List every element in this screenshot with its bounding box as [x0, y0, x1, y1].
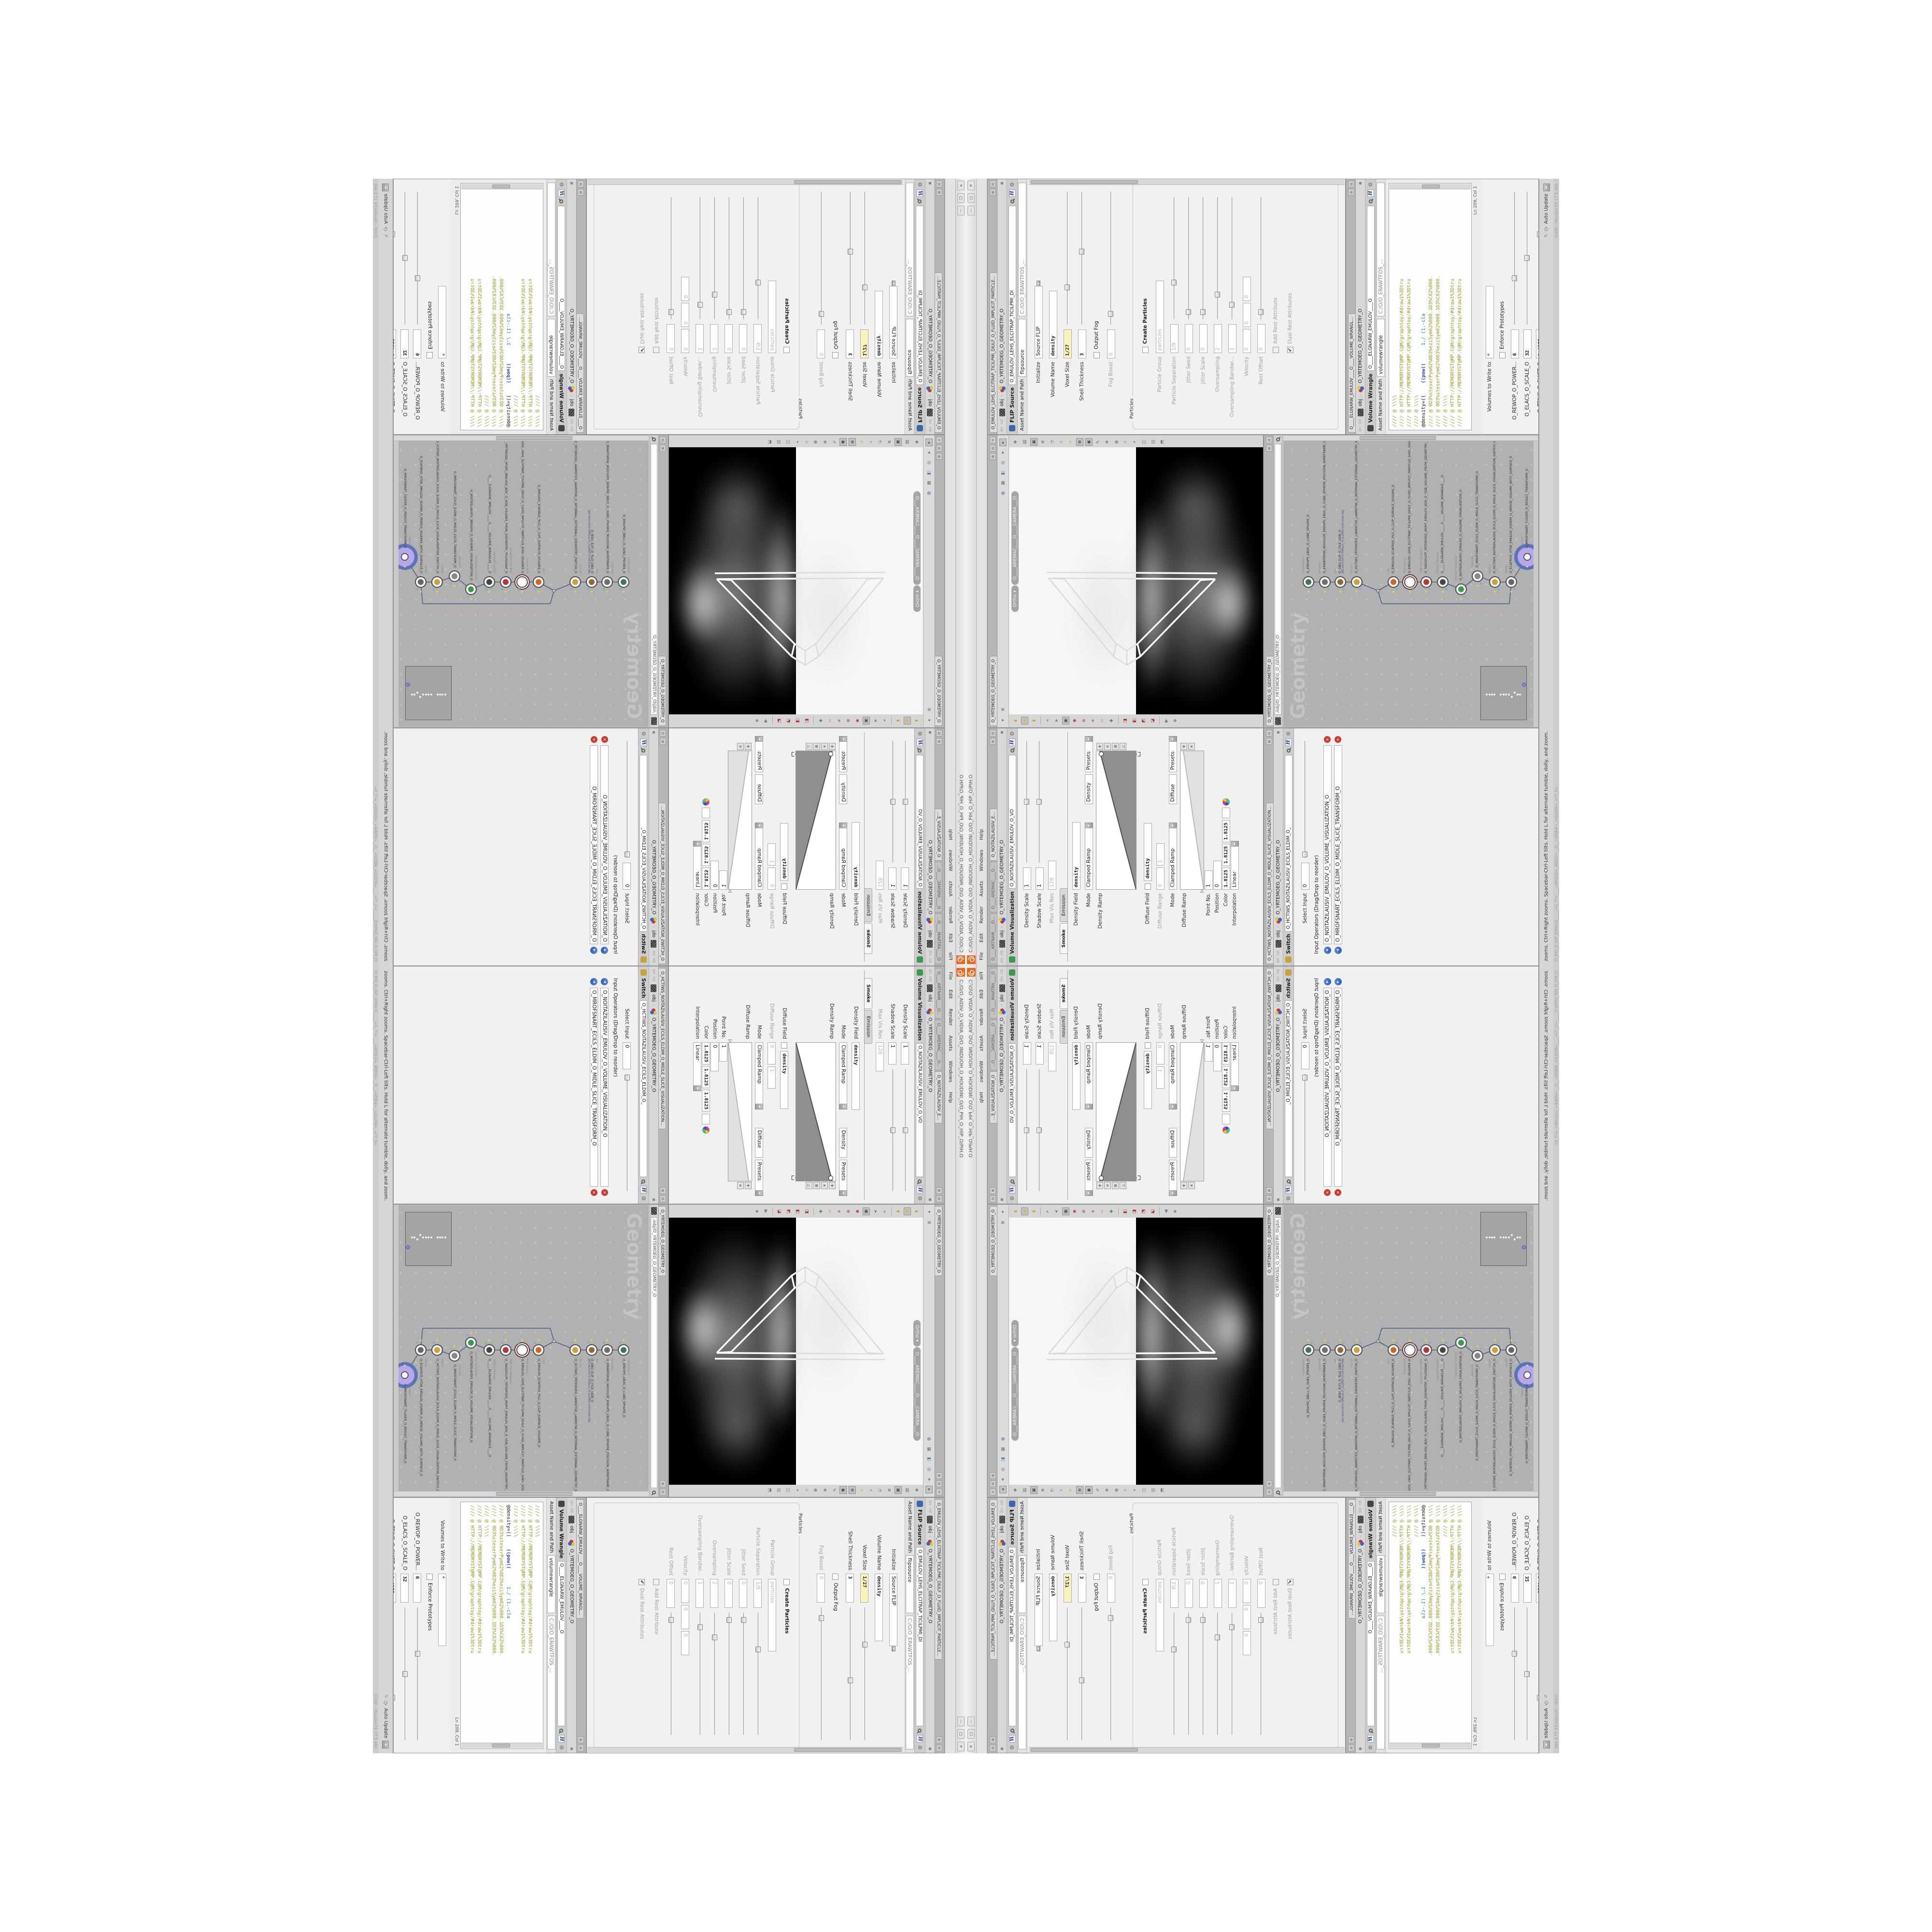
asset-path-field[interactable]: C:/O/O_ERAWTFOS_... — [906, 1616, 914, 1749]
fog-boost-field[interactable]: 0 — [1107, 329, 1115, 358]
node-flag-dot[interactable] — [1343, 1342, 1345, 1344]
pane-split-icon[interactable]: ⊞ — [990, 738, 996, 745]
display-points-icon[interactable]: ● — [1113, 438, 1120, 446]
axis-gizmo-icon[interactable]: ✚ — [1108, 717, 1115, 724]
gear-icon[interactable]: ⚙ — [917, 1745, 923, 1750]
grid-toggle-icon[interactable]: ▧ — [1150, 1486, 1157, 1494]
node-flag-dot[interactable] — [1392, 1339, 1394, 1341]
breadcrumb-node[interactable]: O_YRTEMOEG_O_GEOMETRY_O — [651, 840, 656, 914]
node-flag-dot[interactable] — [1460, 1332, 1462, 1334]
pane-split-icon[interactable]: ⊞ — [936, 453, 942, 460]
breadcrumb-root[interactable]: obj — [927, 1526, 933, 1533]
tab-smoke[interactable]: Smoke — [1060, 978, 1067, 1009]
jitter-scale-field[interactable]: 0 — [725, 324, 733, 353]
param-slider[interactable] — [404, 1607, 405, 1740]
ghost-other-objects-icon[interactable]: ✺ — [821, 1486, 828, 1494]
camera-pill[interactable]: O____AREMAC____O____CAMERA___O — [1011, 1347, 1019, 1441]
node-flag-dot[interactable] — [1425, 591, 1427, 593]
pane-tab-camera[interactable]: O____AREMAC____O... — [990, 1020, 997, 1070]
network-node[interactable] — [618, 576, 629, 588]
node-flag-dot[interactable] — [1339, 591, 1341, 593]
add-rest-attribute-checkbox[interactable] — [653, 347, 660, 353]
color-b-field[interactable]: 1.8125 — [702, 820, 710, 842]
param-slider[interactable] — [1188, 1613, 1189, 1735]
pane-close-icon[interactable]: ✕ — [990, 1489, 996, 1495]
breadcrumb-root[interactable]: obj — [1276, 930, 1281, 938]
delete-input-icon[interactable]: ✕ — [591, 1189, 597, 1196]
input-operator-field[interactable]: O_NOITAZILAUSIV_EMULOV_O_VOLUME_VISUALIZ… — [601, 745, 609, 944]
code-vscrollbar[interactable] — [461, 184, 542, 189]
node-flag-dot[interactable] — [606, 591, 608, 593]
node-flag-dot[interactable] — [587, 588, 589, 590]
search-icon[interactable] — [1010, 1729, 1014, 1733]
menu-arrows-icon[interactable]: ◂▸ — [892, 281, 895, 286]
gyro-dolly-icon[interactable]: ✳ — [1090, 717, 1097, 724]
two-viewports-icon[interactable]: ◫ — [1140, 1486, 1148, 1494]
pane-max-icon[interactable]: ⊟ — [990, 1745, 996, 1751]
rest-offset-field[interactable]: 0 — [1257, 1579, 1265, 1608]
flipbook-icon[interactable]: ▶ — [762, 717, 769, 724]
network-vscrollbar[interactable] — [394, 1491, 649, 1496]
node-flag-dot[interactable] — [1514, 588, 1516, 590]
vector-field[interactable]: 0 — [682, 277, 690, 301]
menu-render[interactable]: Render — [979, 1009, 984, 1026]
target-icon[interactable]: ◎ — [999, 459, 1007, 467]
input-reorder-icon[interactable]: ◂ — [1324, 947, 1331, 954]
pane-max-icon[interactable]: ⊟ — [660, 437, 666, 443]
pin-icon[interactable]: ▪ — [569, 182, 574, 185]
list-icon[interactable]: ≣ — [999, 706, 1007, 713]
target-icon[interactable]: ◎ — [925, 459, 933, 467]
network-node[interactable] — [1351, 576, 1363, 588]
target-icon[interactable]: ◎ — [925, 1465, 933, 1473]
hq-light-bulb-icon[interactable]: ☀ — [858, 438, 865, 446]
mode-menu[interactable]: Clamped Ramp◂▸ — [755, 823, 764, 890]
close-icon[interactable]: ✕ — [967, 181, 975, 190]
ramp-cursor-icon[interactable]: ▷ — [727, 1039, 732, 1043]
pane-tab-camera[interactable]: O____AREMAC____O... — [990, 862, 997, 912]
pane-tab-viewport[interactable]: O_YRTEMOEG_O_GEOMETRY_O — [990, 656, 997, 726]
param-slider[interactable] — [905, 741, 906, 863]
node-flag-dot[interactable] — [1480, 1348, 1482, 1350]
network-node[interactable] — [1421, 1344, 1432, 1356]
refresh-icon[interactable]: ⟳ — [383, 1701, 389, 1705]
houdini-help-icon[interactable]: H — [1367, 189, 1374, 197]
param-slider[interactable] — [821, 192, 822, 325]
mode-menu[interactable]: Clamped Ramp◂▸ — [1169, 1042, 1177, 1109]
ramp-channel-menu[interactable]: Density — [839, 1128, 848, 1158]
ramp-add-point-icon[interactable]: ✛ — [829, 1182, 836, 1189]
ramp-add-point-icon[interactable]: ✛ — [829, 743, 836, 750]
network-node[interactable] — [1489, 1344, 1501, 1356]
pin-icon[interactable]: ▪ — [927, 1198, 933, 1201]
snap-angle-magnet-icon[interactable]: ◧ — [1131, 1207, 1138, 1215]
shade-diamond-icon[interactable]: ◆ — [904, 1207, 911, 1215]
fog-boost-field[interactable]: 0 — [817, 329, 825, 358]
color-wheel-icon[interactable] — [703, 1126, 710, 1134]
mode-menu[interactable]: Clamped Ramp◂▸ — [1169, 823, 1177, 890]
node-name-field[interactable]: O_EMULOV_LEHS_ELCITRAP_TICILPMI_DI — [916, 1547, 924, 1726]
shelf-bell-icon[interactable]: ◖ — [913, 717, 920, 724]
nav-back-icon[interactable]: ⇦ — [927, 426, 933, 432]
network-node[interactable] — [1489, 576, 1501, 588]
network-node[interactable] — [1404, 1344, 1416, 1356]
search-icon[interactable] — [1010, 199, 1014, 203]
param-slider[interactable] — [850, 192, 851, 325]
density-field-input[interactable]: density — [1072, 822, 1080, 890]
node-flag-dot[interactable] — [505, 591, 507, 593]
cache-ring-icon[interactable]: ◔ — [876, 1486, 883, 1494]
pane-split-icon[interactable]: ⊞ — [990, 1472, 996, 1479]
node-flag-dot[interactable] — [454, 585, 455, 587]
pane-max-icon[interactable]: ⊟ — [660, 1489, 666, 1495]
interpolation-menu[interactable]: Linear◂▸ — [694, 841, 702, 890]
nav-back-icon[interactable]: ⇦ — [927, 1500, 933, 1506]
node-flag-dot[interactable] — [518, 1342, 520, 1344]
output-fog-checkbox[interactable] — [1094, 352, 1100, 358]
asset-name-field[interactable]: flipsource — [906, 1555, 914, 1613]
pane-tab-mantra[interactable]: O____ARTNAM____O... — [935, 968, 942, 1019]
pane-max-icon[interactable]: ⊟ — [990, 181, 996, 187]
diffuse-range-min[interactable]: 0 — [1156, 1042, 1165, 1065]
network-minimap[interactable] — [405, 666, 452, 720]
ramp-delete-point-icon[interactable]: ✕ — [737, 743, 744, 750]
node-flag-dot[interactable] — [1477, 585, 1478, 587]
wireframe-pen-icon[interactable]: ✎ — [1094, 438, 1102, 446]
position-field[interactable]: 0 — [1213, 1042, 1222, 1071]
dropdown-icon[interactable]: ▾ — [999, 1208, 1007, 1216]
gyro-tumble-icon[interactable]: ✱ — [1071, 1207, 1079, 1215]
houdini-help-icon[interactable]: H — [917, 189, 923, 197]
gear-icon[interactable]: ⚙ — [1009, 1745, 1015, 1750]
network-node[interactable] — [500, 1344, 511, 1356]
code-vscrollbar[interactable] — [1390, 184, 1471, 189]
node-flag-dot[interactable] — [1343, 588, 1345, 590]
create-particles-checkbox[interactable] — [1142, 1579, 1149, 1585]
breadcrumb-root[interactable]: obj — [999, 994, 1005, 1002]
pane-split-icon[interactable]: ⊞ — [1266, 738, 1272, 745]
houdini-help-icon[interactable]: H — [1285, 739, 1292, 746]
dual-rest-attributes-checkbox[interactable] — [1287, 347, 1293, 353]
dual-rest-attributes-checkbox[interactable] — [1287, 1579, 1293, 1585]
ghost-other-objects-icon[interactable]: ✺ — [1104, 1486, 1111, 1494]
oversampling-bandwi--field[interactable]: 1 — [1228, 1579, 1236, 1608]
search-icon[interactable] — [642, 1179, 646, 1183]
node-flag-dot[interactable] — [1396, 588, 1398, 590]
pane-max-icon[interactable]: ⊟ — [1266, 437, 1272, 443]
param-slider[interactable] — [1217, 1613, 1218, 1735]
view-sphere-icon[interactable]: ◍ — [999, 1435, 1007, 1443]
nav-forward-icon[interactable]: ⇨ — [568, 1508, 575, 1513]
node-flag-dot[interactable] — [571, 588, 573, 590]
houdini-help-icon[interactable]: H — [1009, 1735, 1016, 1743]
node-flag-dot[interactable] — [420, 591, 422, 593]
search-icon[interactable] — [1010, 1179, 1014, 1183]
breadcrumb-node[interactable]: O_YRTEMOEG_O_GEOMETRY_O — [999, 309, 1005, 383]
voxel-size-field[interactable]: 1/27 — [861, 329, 869, 358]
pane-max-icon[interactable]: ⊟ — [990, 730, 996, 737]
gear-icon[interactable]: ⚙ — [1009, 731, 1015, 736]
code-vscrollbar[interactable] — [1390, 1743, 1471, 1748]
param-slider[interactable] — [1067, 192, 1068, 325]
menu-windows[interactable]: Windows — [948, 850, 953, 871]
breadcrumb-root[interactable]: obj — [999, 930, 1005, 938]
color-wheel-icon[interactable] — [703, 798, 710, 806]
pane-tab-volvis[interactable]: O_NOITAZILAUSIV_E... — [935, 1071, 942, 1123]
node-flag-dot[interactable] — [467, 1335, 469, 1336]
color-r-field[interactable]: 1.8125 — [1222, 1042, 1230, 1065]
nav-forward-icon[interactable]: ⇨ — [1275, 950, 1281, 955]
flip-vscrollbar[interactable] — [587, 1747, 903, 1752]
input-operator-field[interactable]: O_NOITAZILAUSIV_EMULOV_O_VOLUME_VISUALIZ… — [601, 988, 609, 1187]
breadcrumb-root[interactable]: obj — [569, 1526, 574, 1533]
display-particles-icon[interactable]: ✦ — [1131, 1486, 1138, 1494]
ramp-flip-icon[interactable]: △ — [1120, 1182, 1126, 1189]
nav-back-icon[interactable]: ⇦ — [927, 958, 933, 963]
add-rest-attribute-checkbox[interactable] — [1273, 1579, 1279, 1585]
node-flag-dot[interactable] — [505, 1339, 507, 1341]
display-particles-icon[interactable]: ✦ — [794, 438, 801, 446]
link-disable-icon[interactable]: ✖ — [885, 438, 893, 446]
param-slider[interactable] — [864, 1607, 865, 1740]
camera-icon[interactable]: ▦ — [999, 1445, 1007, 1453]
position-field[interactable]: 0 — [1213, 861, 1222, 890]
maximize-icon[interactable]: □ — [967, 193, 975, 203]
ramp-point-marker[interactable] — [1136, 1176, 1140, 1180]
minimize-icon[interactable]: — — [957, 206, 965, 215]
color-wheel-icon[interactable] — [1222, 1126, 1230, 1134]
nav-forward-icon[interactable]: ⇨ — [927, 1508, 933, 1513]
ramp-cursor-icon[interactable]: ▷ — [1200, 889, 1205, 893]
shelf-bell-icon[interactable]: ◖ — [1012, 1207, 1019, 1215]
network-node[interactable] — [1319, 1344, 1331, 1356]
pane-tab-mantra[interactable]: O____ARTNAM____O... — [935, 913, 942, 964]
pane-max-icon[interactable]: ⊟ — [660, 1195, 666, 1202]
network-path-field[interactable]: /obj/O_YRTEMOEG_O_GEOMETRY_O — [651, 444, 658, 715]
ramp-add-point-icon[interactable]: ✛ — [1180, 1182, 1187, 1189]
houdini-help-icon[interactable]: H — [1009, 189, 1016, 197]
refresh-icon[interactable]: ⟳ — [1543, 227, 1550, 231]
color-r-field[interactable]: 1.8125 — [702, 1042, 710, 1065]
dual-rest-attributes-checkbox[interactable] — [639, 1579, 645, 1585]
diffuse-enable-checkbox[interactable] — [1145, 883, 1151, 890]
param-slider[interactable] — [1527, 1607, 1528, 1740]
breadcrumb-node[interactable]: O_YRTEMOEG_O_GEOMETRY_O — [1358, 1549, 1363, 1623]
pane-tab-flip[interactable]: O_EMULOV_LEHS_ELCITRAP_TICILPMI_DIULF_O_… — [990, 272, 997, 433]
pane-tab-wrangle[interactable]: O____ELGNARW_EMULOV____O____VOLUME_WRANG… — [577, 1499, 584, 1619]
node-flag-dot[interactable] — [534, 1342, 536, 1344]
snapshot-icon[interactable]: ▤ — [1021, 438, 1028, 446]
param-slider[interactable] — [892, 741, 893, 863]
grid-toggle-icon[interactable]: ▧ — [775, 1486, 782, 1494]
pane-tab-flip[interactable]: O_EMULOV_LEHS_ELCITRAP_TICILPMI_DIULF_O_… — [935, 272, 942, 433]
paint-bucket-icon[interactable]: ◗ — [1030, 1207, 1037, 1215]
pin-icon[interactable]: ▪ — [651, 731, 656, 734]
axis-gizmo-icon[interactable]: ✚ — [817, 717, 824, 724]
volume-name-field[interactable]: density — [875, 291, 883, 358]
refresh-icon[interactable]: ⟳ — [1543, 1701, 1550, 1705]
asset-path-field[interactable]: C:/O/O_ERAWTFOS_... — [1018, 1616, 1026, 1749]
node-flag-dot[interactable] — [433, 1342, 435, 1344]
menu-help[interactable]: Help — [948, 1092, 953, 1103]
node-flag-dot[interactable] — [587, 1342, 589, 1344]
node-name-field[interactable]: O_NOITAZILAUSIV_EMULOV_O_VO — [1009, 1043, 1016, 1178]
network-node[interactable] — [1472, 570, 1483, 582]
gyro-tumble-icon[interactable]: ✱ — [853, 717, 861, 724]
network-node[interactable] — [465, 583, 477, 595]
node-flag-dot[interactable] — [454, 1345, 455, 1347]
ramp-delete-point-icon[interactable]: ✕ — [1188, 1182, 1195, 1189]
node-flag-dot[interactable] — [404, 566, 406, 568]
snap-multi-magnet-icon[interactable]: ◪ — [1149, 717, 1156, 724]
color-g-field[interactable]: 1.8125 — [702, 844, 710, 866]
ramp-presets-menu[interactable]: Presets◂▸ — [755, 1160, 764, 1196]
color-b-field[interactable]: 1.8125 — [1222, 820, 1230, 842]
gyro-track-icon[interactable]: ✲ — [1080, 717, 1088, 724]
select-cursor-icon[interactable]: ➤ — [872, 717, 879, 724]
density-field-input[interactable]: density — [852, 1042, 860, 1110]
gear-icon[interactable]: ⚙ — [1285, 731, 1292, 736]
pane-tab-switch[interactable]: O_HCTIWS_NOITAZILAUSIV_ECILS_ELDIM_O_MID… — [659, 968, 666, 1129]
link-disable-icon[interactable]: ✖ — [885, 1486, 893, 1494]
asset-path-field[interactable]: C:/O/O_ERAWTFOS_... — [547, 183, 555, 316]
pane-max-icon[interactable]: ⊟ — [936, 1745, 942, 1751]
enforce-prototypes-checkbox[interactable] — [1499, 352, 1506, 358]
nav-back-icon[interactable]: ⇦ — [651, 969, 657, 974]
camera-lock-chip-icon[interactable]: ▣ — [863, 717, 870, 724]
snapshot-icon[interactable]: ▤ — [904, 1486, 911, 1494]
pane-max-icon[interactable]: ⊟ — [990, 1195, 996, 1202]
input-reorder-icon[interactable]: ◂ — [591, 947, 598, 954]
param-slider[interactable] — [1188, 197, 1189, 319]
houdini-help-icon[interactable]: H — [640, 739, 647, 746]
network-node[interactable] — [1335, 1344, 1346, 1356]
menu-assets[interactable]: Assets — [979, 881, 984, 897]
shade-diamond-icon[interactable]: ◆ — [904, 717, 911, 724]
param-slider[interactable] — [1174, 197, 1175, 319]
oversampling-bandwi--field[interactable]: 1 — [696, 324, 704, 353]
breadcrumb-root[interactable]: obj — [569, 399, 574, 406]
gyro-track-icon[interactable]: ✲ — [1080, 1207, 1088, 1215]
shaded-sphere-icon[interactable]: ◉ — [839, 1486, 847, 1494]
ramp-point-marker[interactable] — [1136, 752, 1140, 756]
headlight-bulb-icon[interactable]: ☀ — [867, 438, 874, 446]
vector-field[interactable]: 0 — [1243, 303, 1251, 327]
pane-max-icon[interactable]: ⊟ — [1266, 730, 1272, 737]
node-flag-dot[interactable] — [1412, 588, 1414, 590]
ramp-channel-menu[interactable]: Density — [1085, 1128, 1093, 1158]
param-slider[interactable] — [626, 1074, 627, 1191]
breadcrumb-node[interactable]: O_YRTEMOEG_O_GEOMETRY_O — [927, 840, 933, 914]
shell-thickness-field[interactable]: 3 — [1078, 329, 1086, 358]
param-slider[interactable] — [1203, 197, 1204, 319]
asset-path-field[interactable]: C:/O/O_ERAWTFOS_... — [906, 183, 914, 316]
display-points-icon[interactable]: ● — [1113, 1486, 1120, 1494]
nav-back-icon[interactable]: ⇦ — [999, 969, 1005, 974]
grid-toggle-icon[interactable]: ▧ — [775, 438, 782, 446]
point-no-field[interactable]: 1 — [1205, 1042, 1213, 1062]
delete-input-icon[interactable]: ✕ — [1335, 736, 1341, 743]
node-flag-dot[interactable] — [1497, 1342, 1499, 1344]
network-node[interactable] — [465, 1337, 477, 1349]
network-node[interactable] — [483, 576, 495, 588]
pin-icon[interactable]: ▪ — [1358, 1747, 1363, 1750]
ramp-channel-menu[interactable]: Density — [1085, 774, 1093, 804]
network-node[interactable] — [516, 1344, 528, 1356]
asset-name-field[interactable]: flipsource — [1018, 1555, 1026, 1613]
oversampling-bandwi--field[interactable]: 1 — [696, 1579, 704, 1608]
dual-rest-attributes-checkbox[interactable] — [639, 347, 645, 353]
breadcrumb-root[interactable]: obj — [999, 399, 1005, 406]
menu-file[interactable]: File — [979, 972, 984, 980]
node-name-field[interactable]: O_EMULOV_LEHS_ELCITRAP_TICILPMI_DI — [916, 206, 924, 385]
breadcrumb-node[interactable]: O_YRTEMOEG_O_GEOMETRY_O — [569, 309, 574, 383]
breadcrumb-root[interactable]: obj — [927, 399, 933, 406]
network-node[interactable] — [533, 576, 544, 588]
snap-multi-magnet-icon[interactable]: ◪ — [1149, 1207, 1156, 1215]
asset-name-field[interactable]: volumewrangle — [547, 1555, 555, 1613]
breadcrumb-root[interactable]: obj — [1358, 399, 1363, 406]
snap-point-magnet-icon[interactable]: ◩ — [785, 1207, 792, 1215]
list-icon[interactable]: ≣ — [925, 1219, 933, 1226]
o-rewop-o-power--field[interactable]: 6 — [413, 1574, 422, 1603]
node-flag-dot[interactable] — [1510, 591, 1512, 593]
density-ramp-widget[interactable] — [1096, 751, 1136, 890]
pane-max-icon[interactable]: ⊟ — [1266, 1489, 1272, 1495]
network-node[interactable] — [1514, 544, 1534, 570]
auto-update-selector[interactable]: Auto Update — [1544, 1708, 1549, 1738]
pane-tab-switch[interactable]: O_HCTIWS_NOITAZILAUSIV_ECILS_ELDIM_O_MID… — [1266, 803, 1273, 964]
node-flag-dot[interactable] — [1425, 1339, 1427, 1341]
refresh-icon[interactable]: ⟳ — [383, 227, 389, 231]
network-node[interactable] — [1303, 576, 1314, 588]
ramp-point-marker[interactable] — [792, 752, 796, 756]
node-name-field[interactable]: O_HCTIWS_NOITAZILAUSIV_ECILS_ELDIM_O_ — [640, 755, 648, 932]
pin-icon[interactable]: ➤ — [925, 1476, 933, 1483]
ramp-add-point-icon[interactable]: ✛ — [745, 1182, 752, 1189]
density-ramp-widget[interactable] — [1096, 1042, 1136, 1181]
param-slider[interactable] — [743, 197, 744, 319]
network-minimap[interactable] — [1480, 666, 1527, 720]
o-rewop-o-power--field[interactable]: 6 — [413, 329, 422, 358]
oversampling-field[interactable]: 2 — [710, 324, 719, 353]
pane-tab-flip[interactable]: O_EMULOV_LEHS_ELCITRAP_TICILPMI_DIULF_O_… — [935, 1499, 942, 1660]
expand-chip-icon[interactable]: ▸ — [925, 1486, 933, 1493]
camera-icon[interactable]: ▦ — [925, 1445, 933, 1453]
pin-icon[interactable]: ▪ — [927, 1747, 933, 1750]
flipbook-icon[interactable]: ▶ — [1163, 717, 1170, 724]
gear-icon[interactable]: ⚙ — [1367, 1745, 1374, 1750]
pane-split-icon[interactable]: ⊞ — [1266, 445, 1272, 452]
pane-max-icon[interactable]: ⊟ — [660, 730, 666, 737]
color-swatch[interactable] — [702, 1114, 710, 1124]
camera-pill[interactable]: O____AREMAC____O____CAMERA___O — [1011, 491, 1019, 585]
pin-icon[interactable]: ▪ — [999, 731, 1005, 734]
diffuse-ramp-widget[interactable]: ▷ — [1180, 1042, 1204, 1181]
asset-path-field[interactable]: C:/O/O_ERAWTFOS_... — [1377, 183, 1385, 316]
breadcrumb-node[interactable]: O_YRTEMOEG_O_GEOMETRY_O — [999, 840, 1005, 914]
auto-update-selector[interactable]: Auto Update — [1544, 194, 1549, 224]
hq-light-bulb-icon[interactable]: ☀ — [858, 1486, 865, 1494]
breadcrumb-node[interactable]: O_YRTEMOEG_O_GEOMETRY_O — [927, 309, 933, 383]
density-field-input[interactable]: density — [1072, 1042, 1080, 1110]
snap-angle-magnet-icon[interactable]: ◧ — [794, 1207, 801, 1215]
network-node[interactable] — [601, 576, 613, 588]
delete-input-icon[interactable]: ✕ — [1324, 1189, 1331, 1196]
camera-pill[interactable]: O____AREMAC____O____CAMERA___O — [913, 1347, 921, 1441]
pane-split-icon[interactable]: ⊞ — [578, 1736, 584, 1743]
node-flag-dot[interactable] — [501, 1342, 503, 1344]
